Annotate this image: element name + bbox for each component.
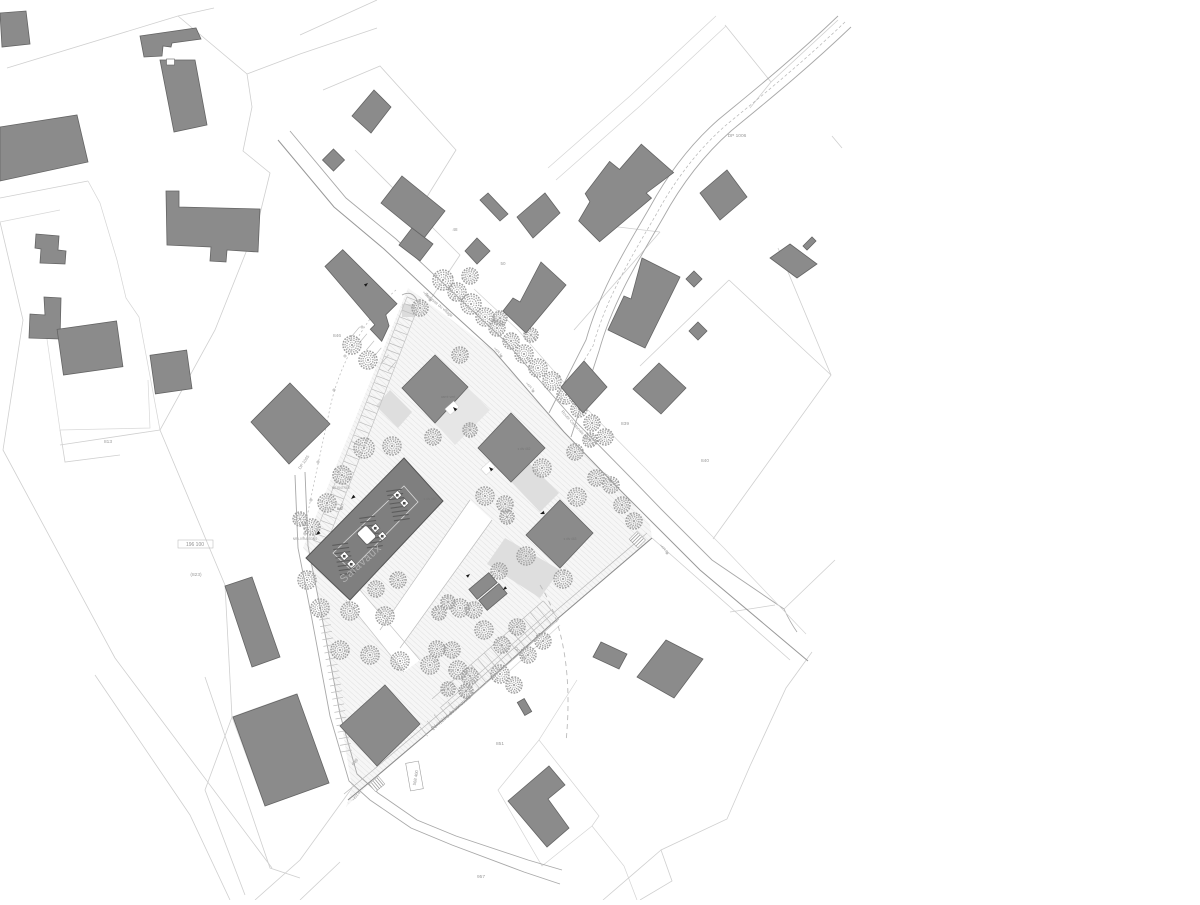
svg-text:NR LIVRAISONS: NR LIVRAISONS — [293, 537, 318, 541]
svg-text:NR ENTREE: NR ENTREE — [332, 486, 350, 490]
svg-text:813: 813 — [104, 439, 112, 445]
svg-text:s div 462: s div 462 — [518, 447, 531, 451]
svg-text:(823): (823) — [190, 572, 202, 578]
svg-text:851: 851 — [496, 741, 504, 747]
svg-text:carré vert: carré vert — [441, 395, 455, 399]
svg-text:839: 839 — [621, 421, 629, 427]
svg-text:846: 846 — [333, 333, 341, 339]
svg-text:s div 463: s div 463 — [564, 537, 577, 541]
svg-text:840: 840 — [701, 458, 709, 464]
svg-text:196 100: 196 100 — [186, 542, 204, 548]
svg-text:DP 1006: DP 1006 — [728, 133, 747, 139]
svg-text:s div 460: s div 460 — [424, 497, 437, 501]
svg-text:BAT: BAT — [337, 507, 343, 511]
svg-text:48: 48 — [452, 227, 458, 232]
svg-text:957: 957 — [477, 874, 485, 880]
svg-text:50: 50 — [500, 261, 506, 266]
